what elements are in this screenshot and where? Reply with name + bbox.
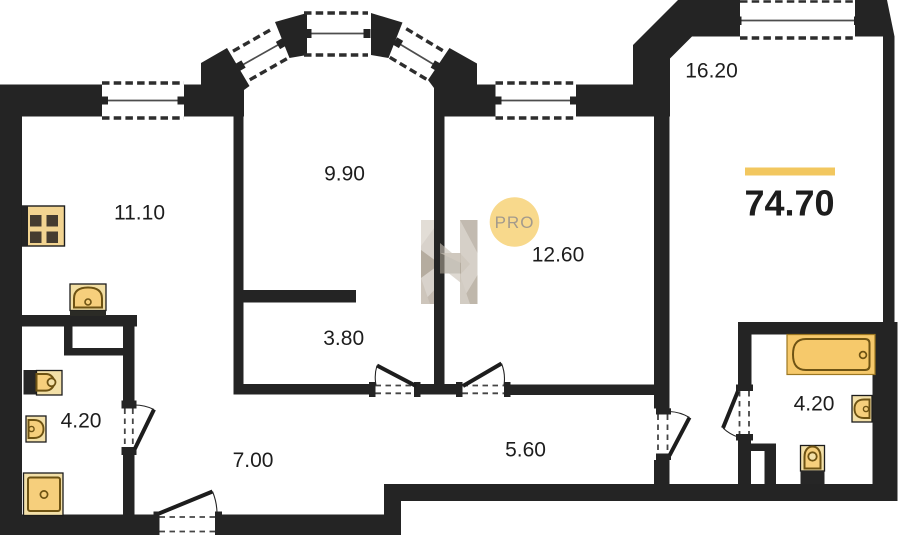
svg-text:12.60: 12.60 [532,244,585,267]
svg-text:3.80: 3.80 [323,327,364,350]
svg-text:16.20: 16.20 [685,60,738,83]
svg-text:4.20: 4.20 [61,410,102,433]
svg-text:74.70: 74.70 [744,183,834,224]
svg-text:7.00: 7.00 [233,449,274,472]
svg-text:9.90: 9.90 [324,163,365,186]
svg-text:11.10: 11.10 [114,202,165,225]
svg-text:PRO: PRO [495,213,535,232]
svg-text:5.60: 5.60 [505,439,546,462]
svg-text:4.20: 4.20 [794,393,835,416]
